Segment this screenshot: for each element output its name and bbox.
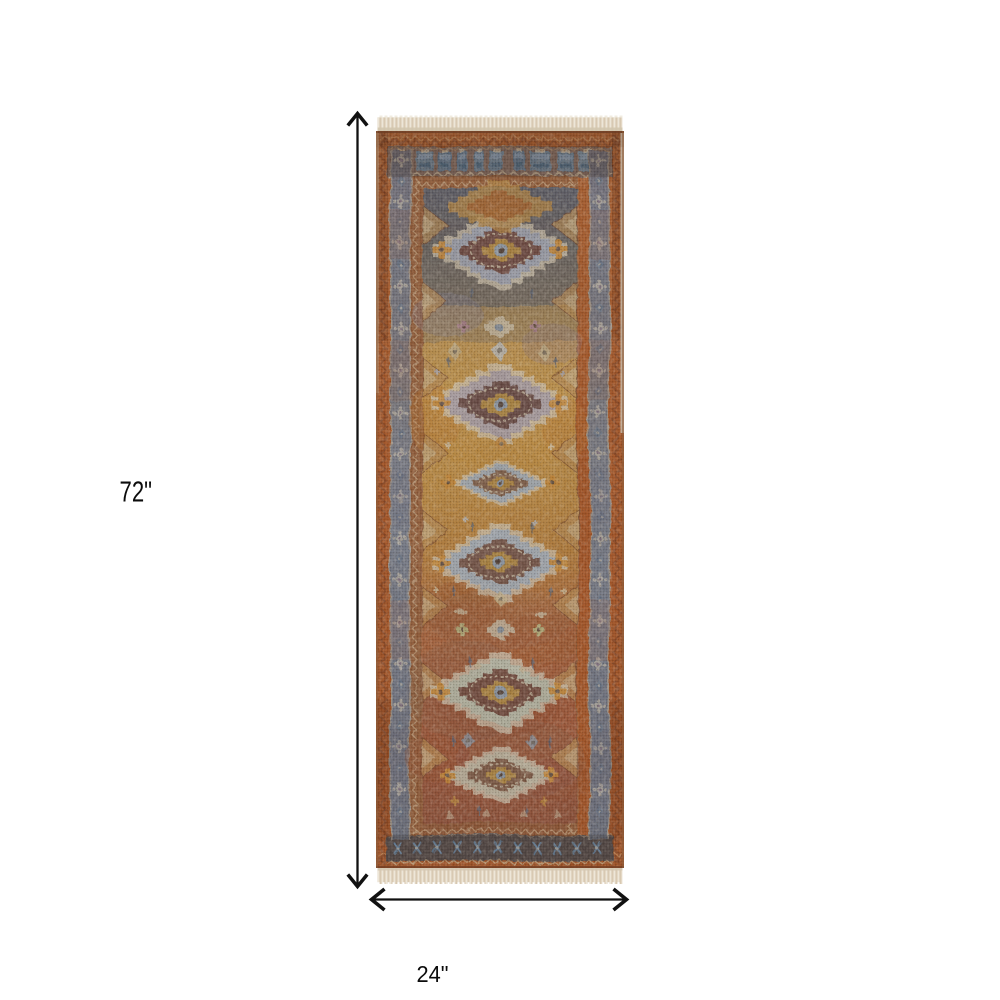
svg-text:24": 24" [417,961,449,987]
svg-text:72": 72" [120,477,153,509]
